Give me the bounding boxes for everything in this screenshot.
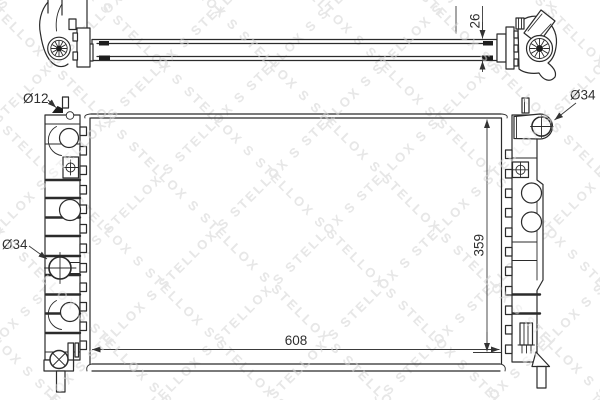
tank-port-circle [522, 183, 542, 203]
dim-core-height-label: 359 [472, 234, 487, 257]
dim-core-width-label: 608 [285, 333, 308, 348]
mount-pin [537, 367, 546, 389]
bolt [69, 19, 76, 30]
bolt [516, 18, 524, 29]
tank-port-circle [522, 212, 542, 232]
bracket [77, 28, 90, 67]
tank-port-circle [60, 200, 81, 221]
mount-clip [99, 41, 109, 46]
dim-thickness-label: 26 [468, 13, 483, 28]
mount-clip [99, 56, 110, 61]
dim-bleed-port-label: Ø12 [23, 91, 49, 106]
radiator-technical-drawing: S STELLOX S STELLOX S STELLOX S STELLOX … [0, 0, 600, 400]
radiator-drawing-page: S STELLOX S STELLOX S STELLOX S STELLOX … [0, 0, 600, 400]
